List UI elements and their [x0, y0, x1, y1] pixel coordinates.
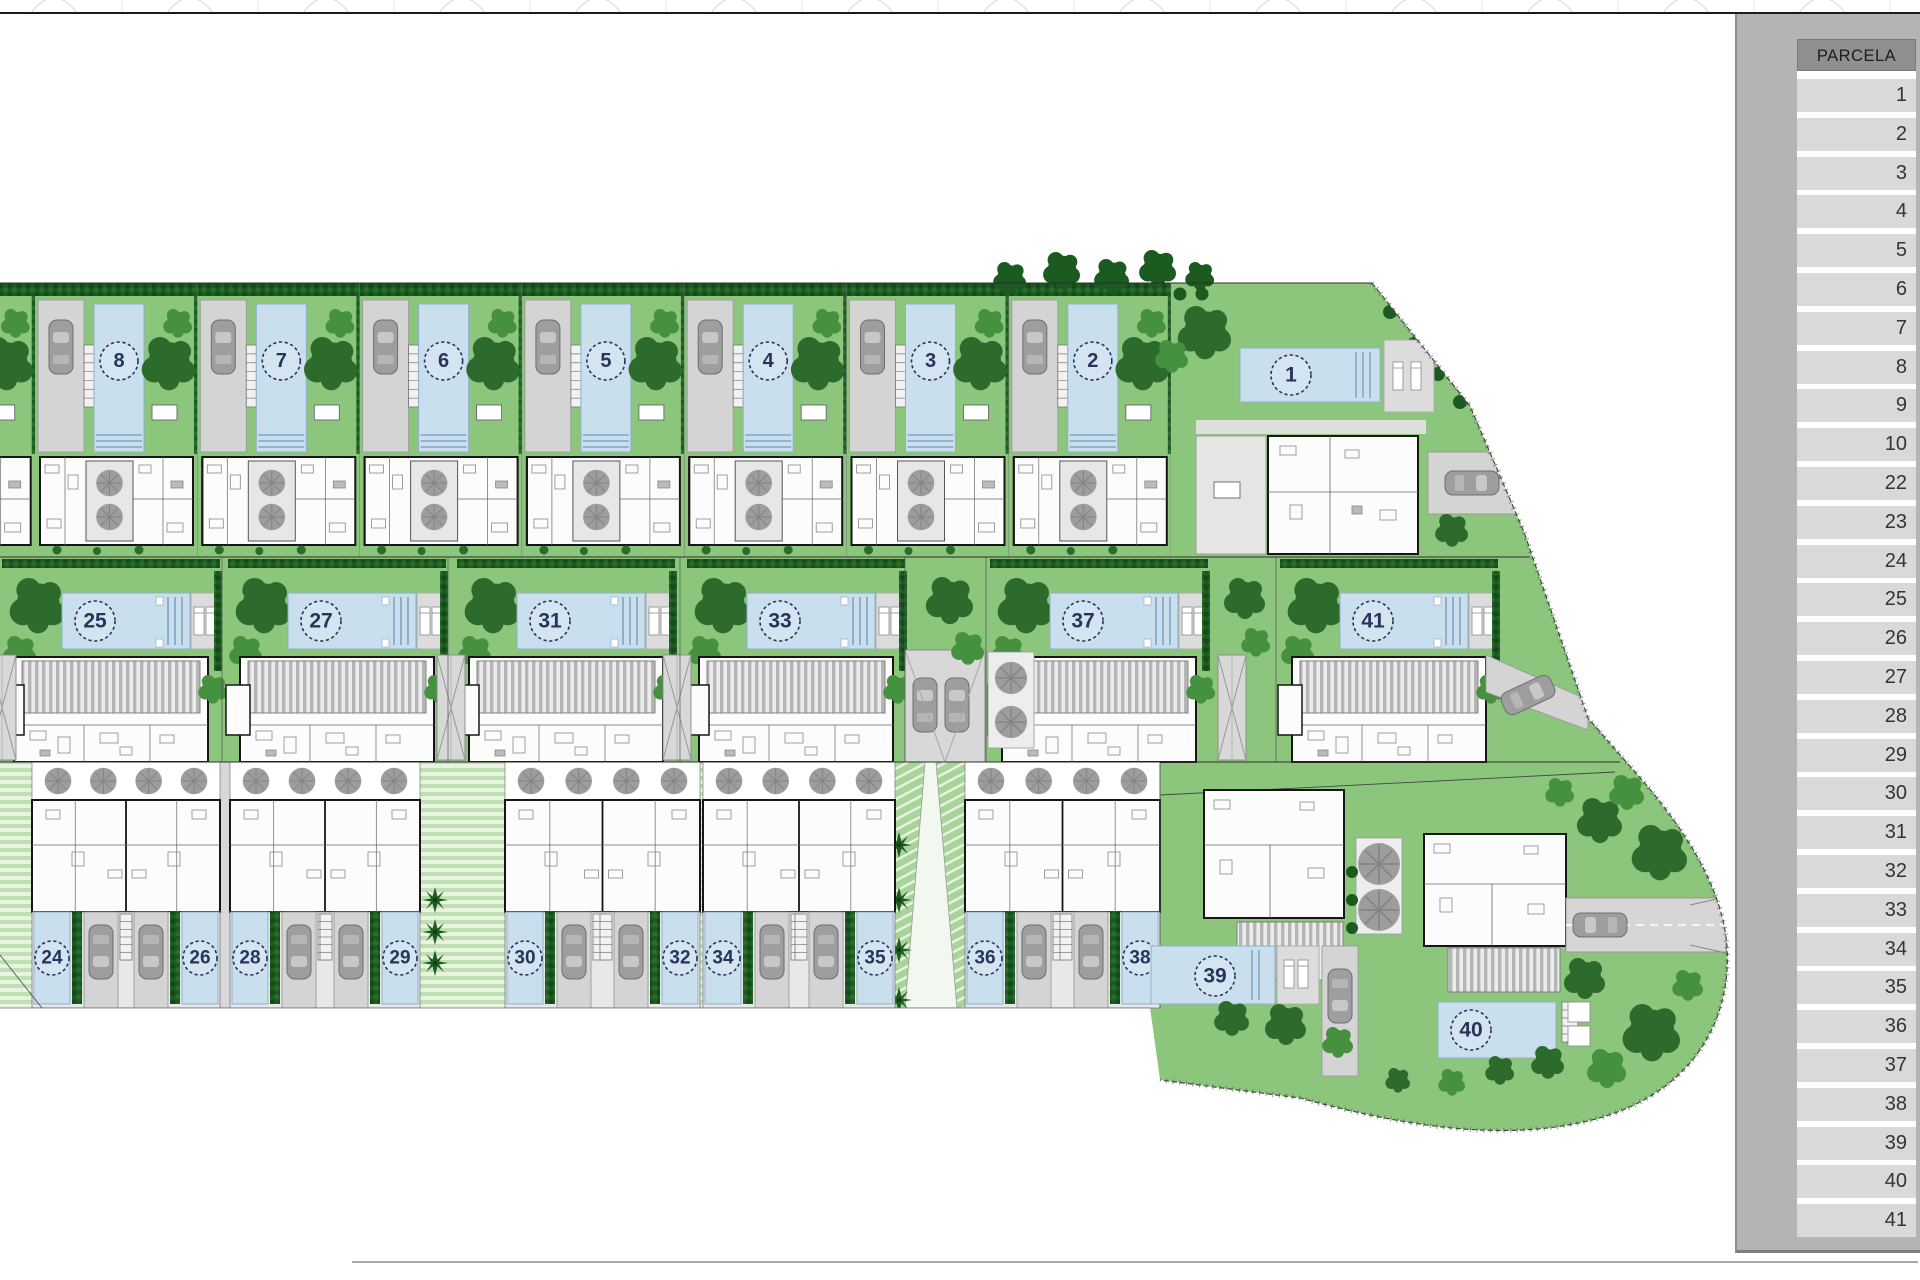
parcel-unit: 2	[1009, 283, 1173, 557]
parcel-number-badge[interactable]: 35	[858, 941, 892, 975]
parcel-number-badge[interactable]: 29	[383, 941, 417, 975]
gray-tree-icon	[518, 768, 545, 795]
gray-tree-icon	[1358, 889, 1400, 931]
parcel-number: 2	[1087, 350, 1098, 372]
gray-tree-icon	[1073, 768, 1100, 795]
gray-tree-icon	[565, 768, 592, 795]
parcel-unit: 8	[35, 283, 199, 557]
parcela-row-cell[interactable]: 39	[1797, 1127, 1916, 1160]
parcel-number: 38	[1129, 948, 1150, 969]
gray-tree-icon	[856, 768, 883, 795]
gray-tree-icon	[96, 470, 123, 497]
parcel-unit: 5	[522, 283, 686, 557]
parcel-number: 4	[763, 350, 775, 372]
parcel-number-badge[interactable]: 41	[1353, 601, 1393, 641]
gray-tree-icon	[583, 504, 610, 531]
gray-tree-icon	[421, 470, 448, 497]
car-icon	[814, 925, 838, 979]
parcel-number: 40	[1459, 1019, 1482, 1042]
parcel-number-badge[interactable]: 1	[1271, 355, 1311, 395]
car-icon	[339, 925, 363, 979]
parcela-row-cell[interactable]: 4	[1797, 195, 1916, 228]
parcela-row-cell[interactable]: 30	[1797, 777, 1916, 810]
parcela-row-cell[interactable]: 38	[1797, 1088, 1916, 1121]
parcel-number: 7	[276, 350, 287, 372]
car-icon	[374, 320, 398, 374]
parcela-row-cell[interactable]: 40	[1797, 1165, 1916, 1198]
parcela-row-cell[interactable]: 24	[1797, 545, 1916, 578]
top-row: 8765432	[0, 283, 1172, 557]
parcel-legend-header: PARCELA	[1797, 39, 1916, 71]
sun-lounger-icon	[1298, 960, 1308, 988]
parcel-unit: 3	[847, 283, 1011, 557]
car-icon	[698, 320, 722, 374]
parcel-unit-partial	[0, 283, 36, 557]
parcel-number-badge[interactable]: 40	[1451, 1010, 1491, 1050]
car-icon	[619, 925, 643, 979]
car-icon	[861, 320, 885, 374]
parcela-row-cell[interactable]: 8	[1797, 351, 1916, 384]
parcel-number-badge[interactable]: 5	[587, 342, 625, 380]
gray-tree-icon	[1025, 768, 1052, 795]
parcel-unit: 33	[685, 557, 912, 762]
parcel-number: 30	[514, 948, 535, 969]
parcela-row-cell[interactable]: 1	[1797, 79, 1916, 112]
parcel-number-badge[interactable]: 7	[262, 342, 300, 380]
shared-driveway	[905, 650, 985, 762]
parcela-row-cell[interactable]: 27	[1797, 661, 1916, 694]
parcela-row-cell[interactable]: 6	[1797, 273, 1916, 306]
gray-tree-icon	[1121, 768, 1148, 795]
parcel-pair-block: 3435	[703, 762, 895, 1008]
car-icon	[89, 925, 113, 979]
parcela-row-cell[interactable]: 41	[1797, 1204, 1916, 1237]
gray-tree-icon	[978, 768, 1005, 795]
gray-tree-icon	[716, 768, 743, 795]
parcel-number: 34	[712, 948, 734, 969]
parcel-number: 29	[389, 948, 410, 969]
car-icon	[536, 320, 560, 374]
parcela-row-cell[interactable]: 28	[1797, 700, 1916, 733]
sun-lounger-icon	[1182, 607, 1192, 635]
gray-tree-icon	[1358, 843, 1400, 885]
parcela-row-cell[interactable]: 37	[1797, 1049, 1916, 1082]
parcel-pair-block: 3032	[505, 762, 700, 1008]
gray-tree-icon	[181, 768, 208, 795]
carport	[663, 655, 691, 760]
palm-walkway	[886, 762, 965, 1013]
tree-icon	[1139, 250, 1176, 287]
gray-tree-icon	[995, 662, 1027, 694]
gray-tree-icon	[583, 470, 610, 497]
site-area: 8765432 1 252731333741 24262829303234353…	[0, 283, 1727, 1131]
parcel-number: 27	[309, 610, 332, 633]
sun-lounger-icon	[879, 607, 889, 635]
parcel-number: 36	[974, 948, 995, 969]
sun-lounger-icon	[649, 607, 659, 635]
parcela-row-cell[interactable]: 22	[1797, 467, 1916, 500]
parcela-row-cell[interactable]: 36	[1797, 1010, 1916, 1043]
parcel-unit: 25	[0, 557, 227, 762]
parcel-number: 25	[83, 610, 107, 633]
gray-tree-icon	[995, 706, 1027, 738]
gray-tree-icon	[243, 768, 270, 795]
car-icon	[1328, 969, 1352, 1023]
gray-tree-icon	[259, 470, 286, 497]
parcel-pair-block: 2426	[32, 762, 220, 1008]
parcel-legend-panel: PARCELA 12345678910222324252627282930313…	[1735, 14, 1920, 1253]
gray-tree-icon	[259, 504, 286, 531]
legend-header-gap	[1797, 71, 1916, 79]
gray-tree-icon	[96, 504, 123, 531]
parcel-number-badge[interactable]: 6	[425, 342, 463, 380]
car-icon	[1573, 913, 1627, 937]
parcel-legend-rows: 1234567891022232425262728293031323334353…	[1797, 79, 1916, 1237]
car-icon	[1079, 925, 1103, 979]
gray-tree-icon	[381, 768, 408, 795]
carport	[1218, 655, 1246, 760]
access-road	[1566, 897, 1726, 953]
parcel-number: 5	[600, 350, 611, 372]
sun-lounger-icon	[1472, 607, 1482, 635]
parcel-number-badge[interactable]: 3	[912, 342, 950, 380]
car-icon	[1023, 320, 1047, 374]
gray-tree-icon	[1070, 504, 1097, 531]
gray-tree-icon	[1070, 470, 1097, 497]
parcel-unit: 7	[197, 283, 360, 557]
parcela-row-cell[interactable]: 9	[1797, 389, 1916, 422]
car-icon	[562, 925, 586, 979]
parcela-row-cell[interactable]: 2	[1797, 118, 1916, 151]
parcel-number: 24	[41, 948, 63, 969]
gray-tree-icon	[335, 768, 362, 795]
parcela-row-cell[interactable]: 35	[1797, 971, 1916, 1004]
parcel-number: 6	[438, 350, 449, 372]
parcel-number-badge[interactable]: 30	[508, 941, 542, 975]
gray-tree-icon	[908, 470, 935, 497]
car-icon	[49, 320, 73, 374]
corner-parcel-1: 1	[1155, 283, 1524, 557]
parcel-unit: 4	[684, 283, 848, 557]
gray-tree-icon	[135, 768, 162, 795]
parcel-number-badge[interactable]: 28	[233, 941, 267, 975]
parcel-number-badge[interactable]: 2	[1074, 342, 1112, 380]
parcel-number-badge[interactable]: 37	[1063, 601, 1103, 641]
site-plan-page: 8765432 1 252731333741 24262829303234353…	[0, 0, 1920, 1280]
car-icon	[211, 320, 235, 374]
bottom-border-line	[352, 1261, 1918, 1263]
parcela-row-cell[interactable]: 31	[1797, 816, 1916, 849]
gray-tree-icon	[809, 768, 836, 795]
sun-lounger-icon	[194, 607, 204, 635]
parcel-number-badge[interactable]: 25	[75, 601, 115, 641]
sun-lounger-icon	[1411, 362, 1421, 390]
gray-tree-icon	[908, 504, 935, 531]
parcela-row-cell[interactable]: 34	[1797, 933, 1916, 966]
parcel-number: 26	[189, 948, 210, 969]
parcela-row-cell[interactable]: 25	[1797, 583, 1916, 616]
parcel-number-badge[interactable]: 32	[663, 941, 697, 975]
parcel-number-badge[interactable]: 4	[749, 342, 787, 380]
parcel-number-badge[interactable]: 39	[1195, 956, 1235, 996]
middle-row: 252731333741	[0, 557, 1588, 762]
parcel-number: 31	[538, 610, 562, 633]
sun-lounger-icon	[420, 607, 430, 635]
parcel-unit: 6	[360, 283, 523, 557]
parcel-number-badge[interactable]: 31	[530, 601, 570, 641]
parcela-row-cell[interactable]: 33	[1797, 894, 1916, 927]
parcela-row-cell[interactable]: 29	[1797, 739, 1916, 772]
parcela-row-cell[interactable]: 10	[1797, 428, 1916, 461]
parcel-number-badge[interactable]: 8	[100, 342, 138, 380]
parcela-row-cell[interactable]: 7	[1797, 312, 1916, 345]
gray-tree-icon	[661, 768, 688, 795]
parcel-pair-block: 2829	[230, 762, 420, 1008]
parcel-number: 39	[1203, 965, 1226, 988]
gray-tree-icon	[613, 768, 640, 795]
site-plan-drawing: 8765432 1 252731333741 24262829303234353…	[0, 0, 1735, 1280]
parcel-number: 28	[239, 948, 260, 969]
parcela-row-cell[interactable]: 23	[1797, 506, 1916, 539]
car-icon	[1445, 471, 1499, 495]
gray-tree-icon	[289, 768, 316, 795]
parcel-unit: 31	[455, 557, 682, 762]
parcela-row-cell[interactable]: 32	[1797, 855, 1916, 888]
carport	[0, 655, 16, 760]
parcel-number: 32	[669, 948, 690, 969]
parcel-number: 1	[1285, 364, 1297, 387]
parcela-row-cell[interactable]: 26	[1797, 622, 1916, 655]
gray-tree-icon	[745, 504, 772, 531]
carport	[437, 655, 465, 760]
parcel-number-badge[interactable]: 36	[968, 941, 1002, 975]
gray-tree-icon	[762, 768, 789, 795]
gray-tree-icon	[421, 504, 448, 531]
parcel-number-badge[interactable]: 26	[183, 941, 217, 975]
parcel-number-badge[interactable]: 33	[760, 601, 800, 641]
parcel-number-badge[interactable]: 27	[301, 601, 341, 641]
car-icon	[139, 925, 163, 979]
parcel-number-badge[interactable]: 24	[35, 941, 69, 975]
parcel-number: 33	[768, 610, 791, 633]
parcel-number: 35	[864, 948, 886, 969]
parcel-pair-block: 3638	[965, 762, 1160, 1008]
parcel-number-badge[interactable]: 34	[706, 941, 740, 975]
gray-tree-icon	[90, 768, 117, 795]
parcel-number: 37	[1071, 610, 1094, 633]
gray-tree-icon	[45, 768, 72, 795]
parcel-unit: 27	[226, 557, 453, 762]
parcela-row-cell[interactable]: 3	[1797, 157, 1916, 190]
sun-lounger-icon	[1393, 362, 1403, 390]
car-icon	[760, 925, 784, 979]
parcel-unit: 41	[1278, 557, 1505, 762]
sun-lounger-icon	[1284, 960, 1294, 988]
car-icon	[287, 925, 311, 979]
parcel-40: 40	[1424, 834, 1590, 1058]
parcel-number: 3	[925, 350, 936, 372]
palm-strip	[420, 762, 450, 1008]
car-icon	[1022, 925, 1046, 979]
parcela-row-cell[interactable]: 5	[1797, 234, 1916, 267]
gray-tree-icon	[745, 470, 772, 497]
parcel-number: 8	[113, 350, 124, 372]
parcel-number: 41	[1361, 610, 1385, 633]
